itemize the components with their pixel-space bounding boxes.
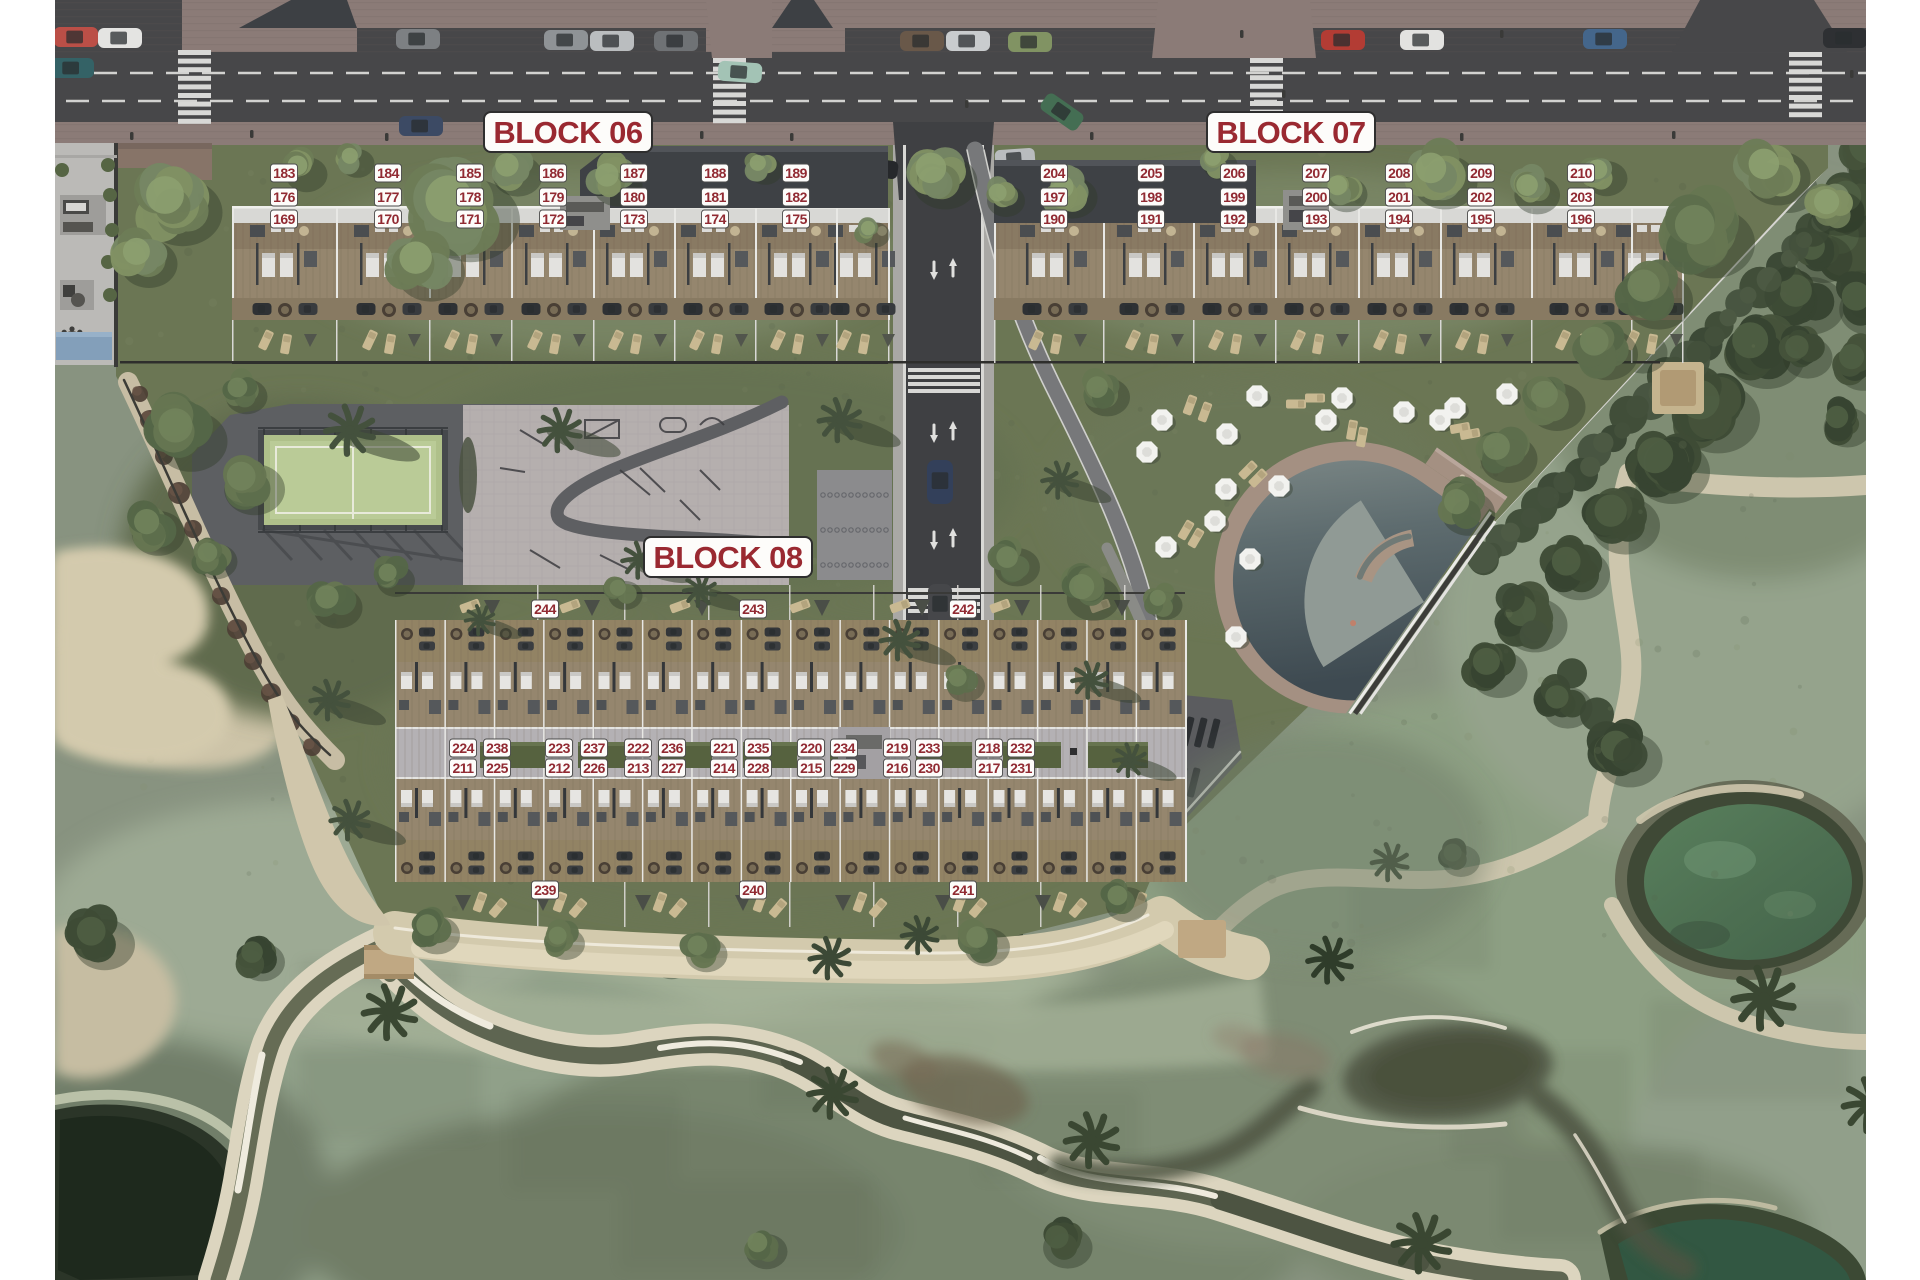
svg-text:241: 241 — [952, 882, 975, 898]
svg-text:172: 172 — [542, 211, 565, 227]
svg-text:220: 220 — [800, 740, 823, 756]
svg-text:214: 214 — [713, 760, 736, 776]
svg-text:222: 222 — [627, 740, 650, 756]
svg-text:225: 225 — [486, 760, 509, 776]
svg-text:223: 223 — [548, 740, 571, 756]
svg-text:203: 203 — [1570, 189, 1593, 205]
svg-text:197: 197 — [1043, 189, 1066, 205]
svg-text:221: 221 — [713, 740, 736, 756]
svg-text:238: 238 — [486, 740, 509, 756]
svg-text:180: 180 — [623, 189, 646, 205]
svg-text:195: 195 — [1470, 211, 1493, 227]
svg-text:196: 196 — [1570, 211, 1593, 227]
svg-text:BLOCK 08: BLOCK 08 — [653, 540, 803, 575]
svg-text:192: 192 — [1223, 211, 1246, 227]
svg-text:230: 230 — [918, 760, 941, 776]
svg-text:210: 210 — [1570, 165, 1593, 181]
svg-text:232: 232 — [1010, 740, 1033, 756]
svg-text:185: 185 — [459, 165, 482, 181]
svg-text:200: 200 — [1305, 189, 1328, 205]
svg-text:182: 182 — [785, 189, 808, 205]
svg-text:209: 209 — [1470, 165, 1493, 181]
svg-text:208: 208 — [1388, 165, 1411, 181]
svg-text:183: 183 — [273, 165, 296, 181]
svg-text:213: 213 — [627, 760, 650, 776]
svg-text:234: 234 — [833, 740, 856, 756]
svg-text:171: 171 — [459, 211, 482, 227]
svg-text:181: 181 — [704, 189, 727, 205]
svg-text:188: 188 — [704, 165, 727, 181]
svg-text:204: 204 — [1043, 165, 1066, 181]
svg-text:202: 202 — [1470, 189, 1493, 205]
svg-text:186: 186 — [542, 165, 565, 181]
svg-text:184: 184 — [377, 165, 400, 181]
svg-text:217: 217 — [978, 760, 1001, 776]
svg-text:224: 224 — [452, 740, 475, 756]
svg-text:178: 178 — [459, 189, 482, 205]
svg-text:242: 242 — [952, 601, 975, 617]
svg-text:198: 198 — [1140, 189, 1163, 205]
svg-text:227: 227 — [661, 760, 684, 776]
svg-text:216: 216 — [886, 760, 909, 776]
svg-text:BLOCK 06: BLOCK 06 — [493, 115, 643, 150]
svg-text:231: 231 — [1010, 760, 1033, 776]
svg-text:173: 173 — [623, 211, 646, 227]
svg-text:243: 243 — [742, 601, 765, 617]
svg-text:237: 237 — [583, 740, 606, 756]
svg-text:187: 187 — [623, 165, 646, 181]
svg-text:207: 207 — [1305, 165, 1328, 181]
svg-text:190: 190 — [1043, 211, 1066, 227]
svg-text:226: 226 — [583, 760, 606, 776]
svg-text:228: 228 — [747, 760, 770, 776]
svg-text:176: 176 — [273, 189, 296, 205]
svg-text:191: 191 — [1140, 211, 1163, 227]
svg-text:170: 170 — [377, 211, 400, 227]
svg-text:174: 174 — [704, 211, 727, 227]
svg-text:189: 189 — [785, 165, 808, 181]
svg-text:193: 193 — [1305, 211, 1328, 227]
svg-text:201: 201 — [1388, 189, 1411, 205]
svg-text:215: 215 — [800, 760, 823, 776]
svg-text:177: 177 — [377, 189, 400, 205]
svg-text:233: 233 — [918, 740, 941, 756]
svg-text:239: 239 — [534, 882, 557, 898]
svg-text:194: 194 — [1388, 211, 1411, 227]
svg-text:244: 244 — [534, 601, 557, 617]
svg-text:240: 240 — [742, 882, 765, 898]
svg-text:179: 179 — [542, 189, 565, 205]
svg-text:199: 199 — [1223, 189, 1246, 205]
svg-text:175: 175 — [785, 211, 808, 227]
svg-text:211: 211 — [452, 760, 474, 776]
svg-text:212: 212 — [548, 760, 571, 776]
svg-text:229: 229 — [833, 760, 856, 776]
svg-text:205: 205 — [1140, 165, 1163, 181]
svg-text:219: 219 — [886, 740, 909, 756]
svg-text:169: 169 — [273, 211, 296, 227]
svg-text:236: 236 — [661, 740, 684, 756]
svg-text:235: 235 — [747, 740, 770, 756]
svg-text:BLOCK 07: BLOCK 07 — [1216, 115, 1365, 150]
svg-text:206: 206 — [1223, 165, 1246, 181]
svg-text:218: 218 — [978, 740, 1001, 756]
